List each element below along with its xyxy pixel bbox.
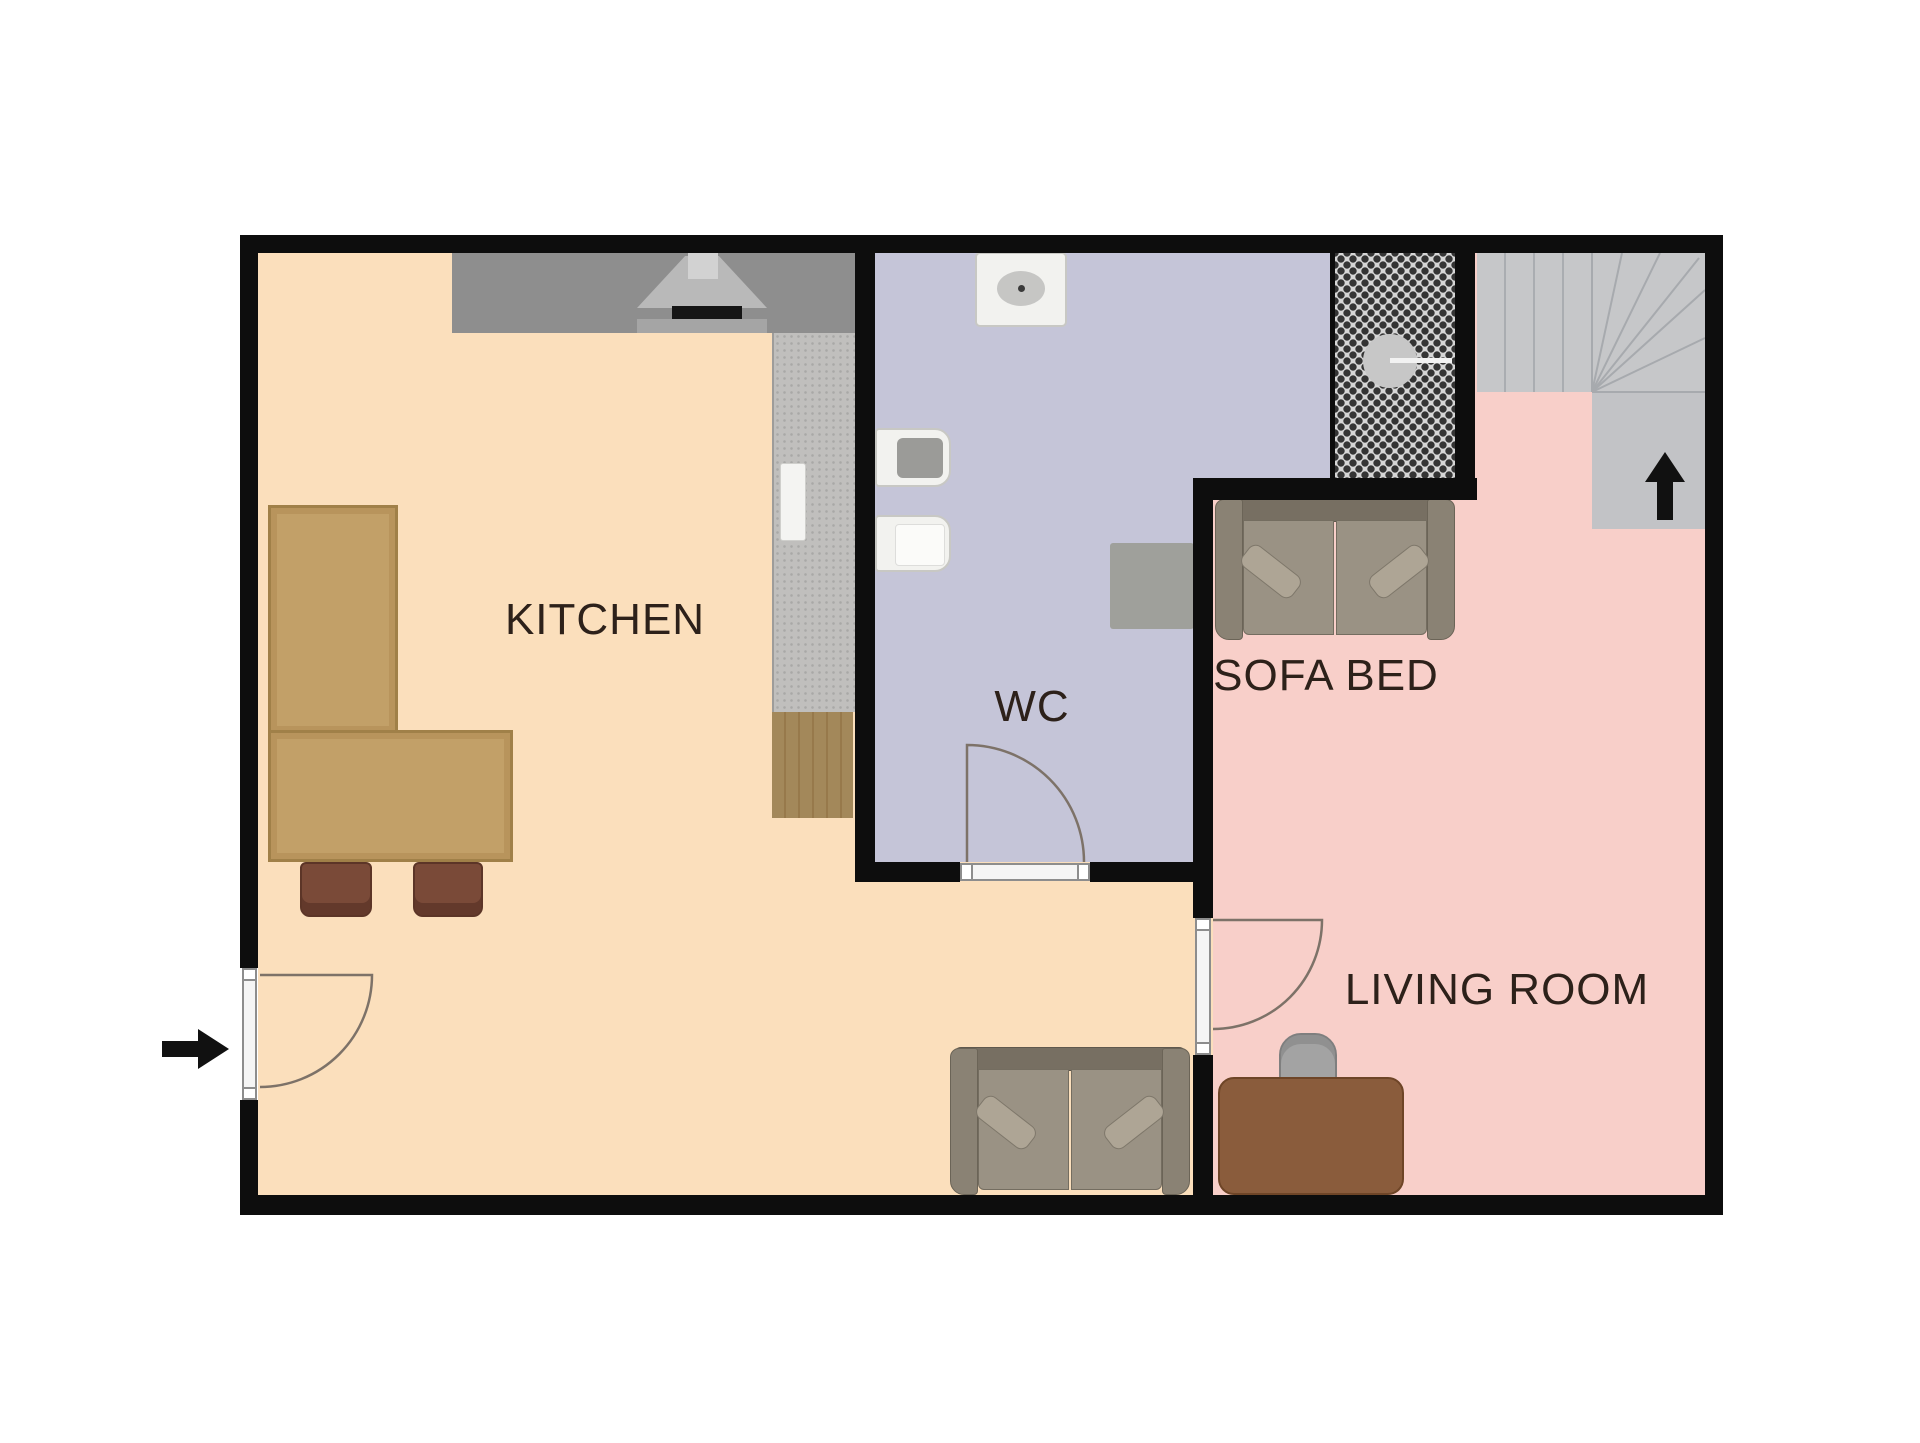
floor-plan-canvas: KITCHEN WC SOFA BED LIVING ROOM: [0, 0, 1920, 1443]
entrance-arrow-icon: [162, 1029, 229, 1069]
label-living-room: LIVING ROOM: [1345, 968, 1649, 1012]
door-sill-entrance: [242, 968, 257, 1100]
label-sofa-bed: SOFA BED: [1213, 654, 1439, 698]
wall-left-upper: [240, 235, 258, 968]
wall-living-left-upper: [1193, 500, 1213, 918]
stairs-up-arrow-icon: [1645, 452, 1685, 520]
wall-top: [240, 235, 1723, 253]
wall-right: [1705, 235, 1723, 1215]
wall-wc-bottom-left: [855, 862, 960, 882]
label-kitchen: KITCHEN: [505, 598, 705, 642]
door-swing-arc-wc: [967, 745, 1084, 862]
plan-annotations: [0, 0, 1920, 1443]
label-wc: WC: [994, 685, 1069, 729]
wall-wc-left: [855, 253, 875, 882]
door-sill-wc: [960, 863, 1090, 881]
wall-wc-bottom-right: [1090, 862, 1193, 882]
door-swing-arc-entrance: [260, 975, 372, 1087]
door-swing-arc-living: [1213, 920, 1322, 1029]
wall-living-left-lower: [1193, 1055, 1213, 1195]
door-sill-living: [1195, 918, 1211, 1055]
wall-bottom: [240, 1195, 1723, 1215]
wall-alcove-top: [1193, 478, 1477, 500]
stairs-winder-lines: [1592, 253, 1705, 392]
